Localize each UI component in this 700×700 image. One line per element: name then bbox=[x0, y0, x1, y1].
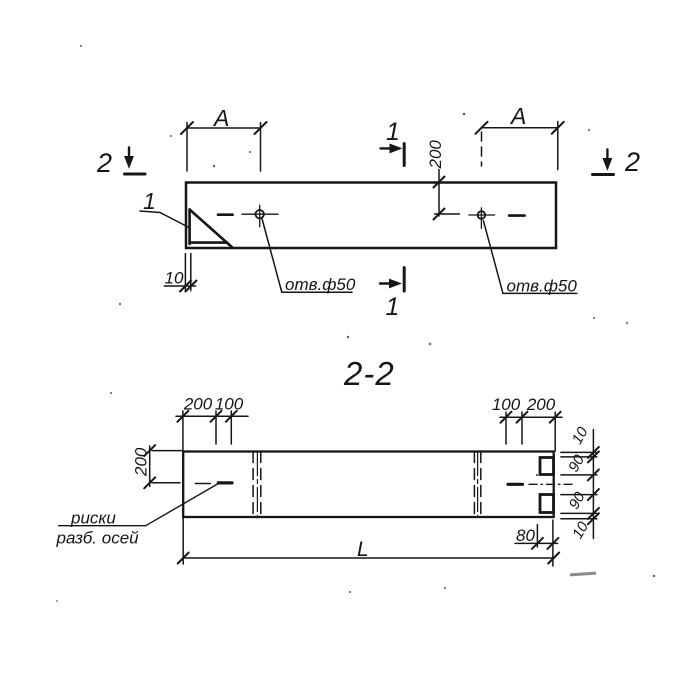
svg-text:10: 10 bbox=[165, 269, 184, 288]
svg-text:200: 200 bbox=[526, 395, 556, 414]
svg-text:200: 200 bbox=[183, 395, 213, 414]
svg-text:2: 2 bbox=[96, 148, 112, 178]
svg-text:разб. осей: разб. осей bbox=[56, 529, 140, 548]
svg-text:отв.ф50: отв.ф50 bbox=[507, 277, 578, 296]
svg-text:2: 2 bbox=[624, 147, 640, 177]
svg-text:90: 90 bbox=[565, 452, 588, 476]
svg-text:90: 90 bbox=[566, 489, 589, 513]
svg-text:80: 80 bbox=[516, 526, 535, 545]
svg-text:риски: риски bbox=[70, 509, 116, 528]
svg-text:L: L bbox=[357, 538, 369, 561]
svg-text:2-2: 2-2 bbox=[343, 355, 395, 392]
svg-text:1: 1 bbox=[143, 188, 156, 214]
svg-text:отв.ф50: отв.ф50 bbox=[285, 275, 356, 294]
svg-text:100: 100 bbox=[215, 395, 244, 414]
svg-text:1: 1 bbox=[386, 118, 400, 146]
svg-text:200: 200 bbox=[132, 447, 151, 477]
svg-text:А: А bbox=[212, 105, 229, 131]
svg-text:1: 1 bbox=[386, 293, 400, 321]
svg-text:100: 100 bbox=[492, 395, 521, 414]
svg-text:А: А bbox=[509, 103, 526, 129]
svg-text:200: 200 bbox=[426, 140, 445, 170]
svg-text:10: 10 bbox=[569, 424, 592, 448]
